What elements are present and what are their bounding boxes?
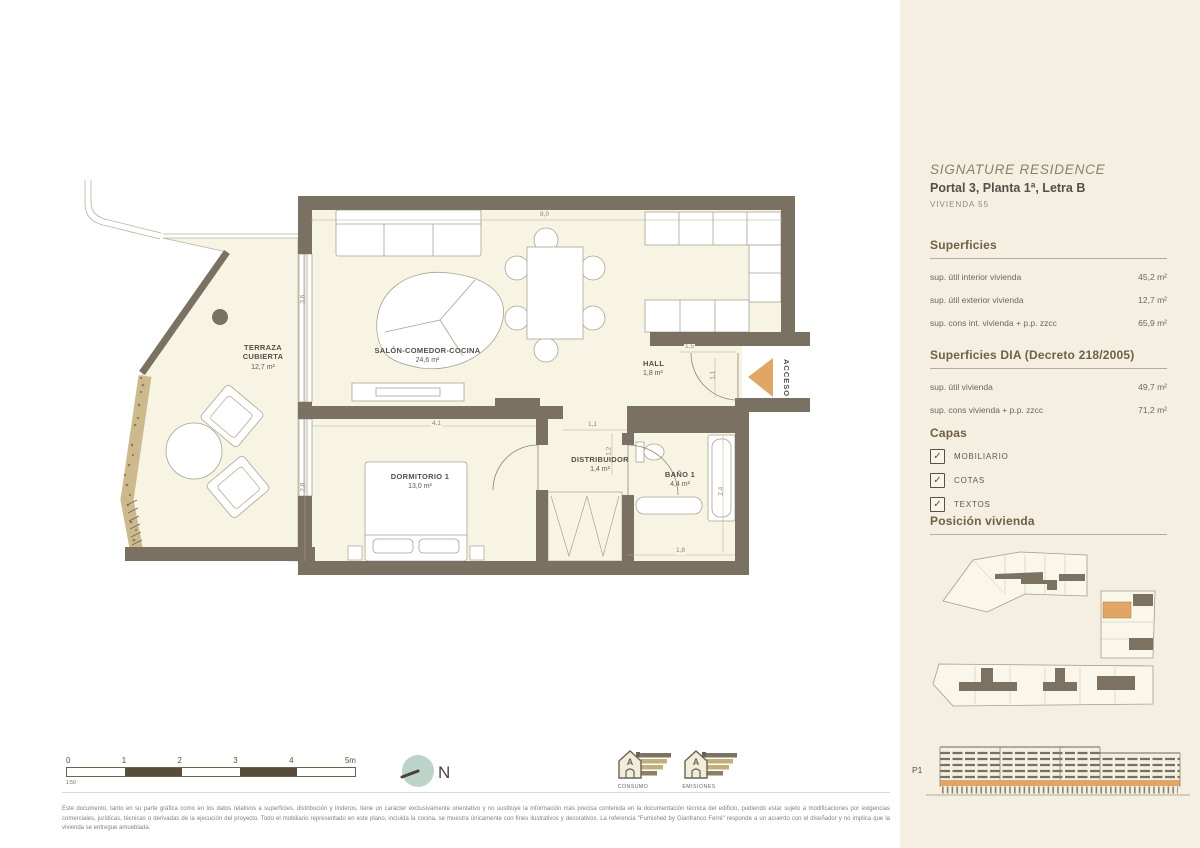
checkbox-icon[interactable]: ✓ [930, 449, 945, 464]
energy-rating-consumo: A CONSUMO [618, 751, 671, 790]
sidebar: SIGNATURE RESIDENCE Portal 3, Planta 1ª,… [900, 0, 1200, 848]
room-label-terraza: TERRAZA CUBIERTA 12,7 m² [225, 343, 301, 373]
energy-rating-emisiones: A EMISIONES [682, 751, 737, 790]
checkbox-mobiliario[interactable]: ✓ MOBILIARIO [930, 449, 1167, 464]
surface-row: sup. cons vivienda + p.p. zzcc 71,2 m² [930, 405, 1167, 415]
section-heading: Superficies DIA (Decreto 218/2005) [930, 348, 1167, 362]
highlighted-floor-band [940, 780, 1180, 786]
dimension-label: 1,1 [587, 422, 598, 429]
energy-grade: A [627, 757, 634, 767]
section-heading: Posición vivienda [930, 514, 1167, 528]
superficies-dia-section: Superficies DIA (Decreto 218/2005) sup. … [930, 348, 1167, 415]
room-label-salon: SALÓN-COMEDOR-COCINA 24,6 m² [350, 346, 505, 366]
superficies-section: Superficies sup. útil interior vivienda … [930, 238, 1167, 328]
checkbox-icon[interactable]: ✓ [930, 473, 945, 488]
disclaimer-text: Este documento, tanto en su parte gráfic… [62, 805, 890, 834]
site-plan [925, 546, 1175, 731]
nightstand [348, 546, 362, 560]
section-heading: Capas [930, 426, 1167, 440]
dimension-label: 2,8 [300, 482, 307, 493]
energy-grade: A [693, 757, 700, 767]
energy-label: CONSUMO [618, 784, 649, 790]
nightstand [470, 546, 484, 560]
dimension-label: 3,6 [300, 294, 307, 305]
page: ACCESO TERRAZA CUBIERTA 12,7 m² SALÓN-CO… [0, 0, 1200, 848]
unit-header: SIGNATURE RESIDENCE Portal 3, Planta 1ª,… [930, 162, 1167, 209]
posicion-section: Posición vivienda [930, 514, 1167, 535]
energy-ratings: A CONSUMO A EMISIONES [615, 747, 745, 795]
closet [548, 492, 622, 561]
sofa [336, 210, 481, 256]
column [212, 309, 228, 325]
capas-section: Capas ✓ MOBILIARIO ✓ COTAS ✓ TEXTOS [930, 426, 1167, 512]
checkbox-textos[interactable]: ✓ TEXTOS [930, 497, 1167, 512]
dimension-label: 2,4 [718, 486, 725, 497]
surface-row: sup. cons int. vivienda + p.p. zzcc 65,9… [930, 318, 1167, 328]
footer-divider [62, 792, 890, 793]
dimension-label: 1,1 [710, 370, 717, 381]
shower-tray [636, 497, 702, 514]
room-label-dormitorio: DORMITORIO 1 13,0 m² [355, 472, 485, 492]
floor-plan-drawing: ACCESO [55, 160, 815, 610]
tv-console [352, 383, 464, 401]
acceso-arrow-icon [748, 358, 773, 397]
surface-row: sup. útil exterior vivienda 12,7 m² [930, 295, 1167, 305]
unit-subtitle: VIVIENDA 55 [930, 200, 1167, 209]
scale-ticks: 01 23 45m [66, 756, 356, 765]
elevation-drawing: P1 [908, 740, 1193, 802]
room-label-hall: HALL 1,8 m² [643, 359, 713, 379]
energy-label: EMISIONES [682, 784, 715, 790]
floor-indicator: P1 [912, 765, 923, 775]
floor-plan: ACCESO TERRAZA CUBIERTA 12,7 m² SALÓN-CO… [55, 160, 815, 610]
dimension-label: 8,0 [539, 212, 550, 219]
brand-title: SIGNATURE RESIDENCE [930, 162, 1167, 177]
checkbox-icon[interactable]: ✓ [930, 497, 945, 512]
scale-bar-segments [66, 767, 356, 777]
unit-title: Portal 3, Planta 1ª, Letra B [930, 181, 1167, 195]
section-heading: Superficies [930, 238, 1167, 252]
acceso-label: ACCESO [782, 359, 791, 397]
dimension-label: 1,8 [675, 548, 686, 555]
dimension-label: 1,2 [606, 446, 613, 457]
surface-row: sup. útil vivienda 49,7 m² [930, 382, 1167, 392]
dimension-label: 4,1 [431, 421, 442, 428]
scale-ratio: 1:50 [66, 780, 356, 786]
room-label-bano: BAÑO 1 4,4 m² [640, 470, 720, 490]
checkbox-cotas[interactable]: ✓ COTAS [930, 473, 1167, 488]
dimension-label: 1,5 [684, 344, 695, 351]
terrace-table [166, 423, 222, 479]
highlighted-unit [1103, 602, 1131, 618]
room-label-distribuidor: DISTRIBUIDOR 1,4 m² [545, 455, 655, 475]
north-label: N [438, 763, 450, 782]
scale-bar: 01 23 45m 1:50 [66, 756, 356, 786]
window [299, 254, 312, 496]
north-compass: N [398, 752, 468, 792]
surface-row: sup. útil interior vivienda 45,2 m² [930, 272, 1167, 282]
